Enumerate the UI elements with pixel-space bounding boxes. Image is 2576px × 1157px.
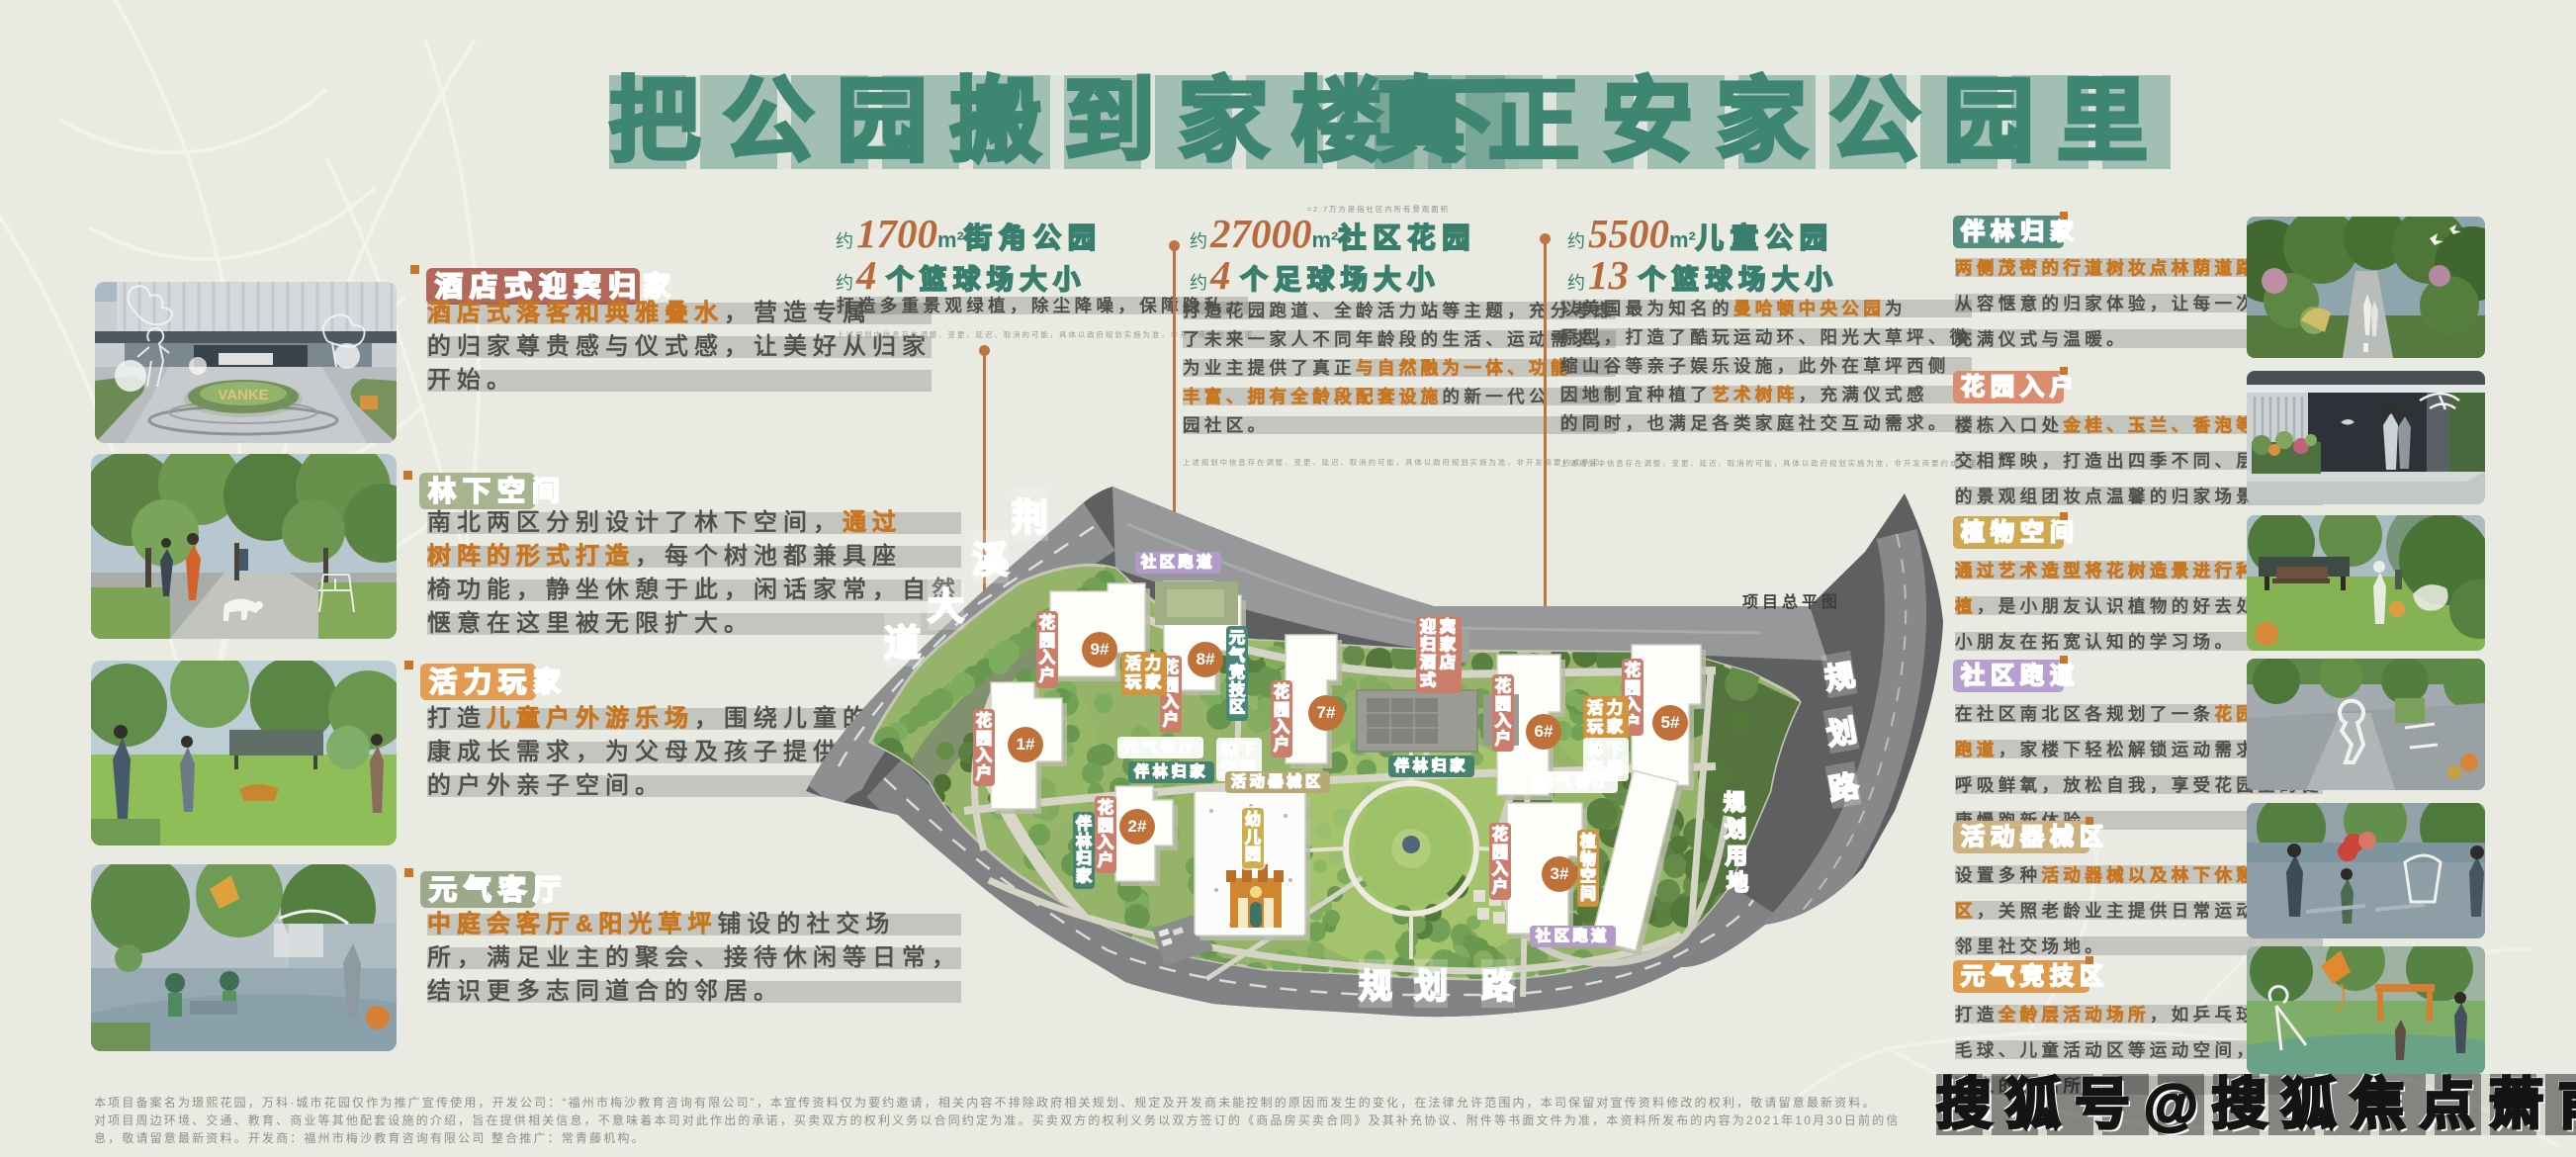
svg-text:VANKE: VANKE (218, 387, 268, 403)
